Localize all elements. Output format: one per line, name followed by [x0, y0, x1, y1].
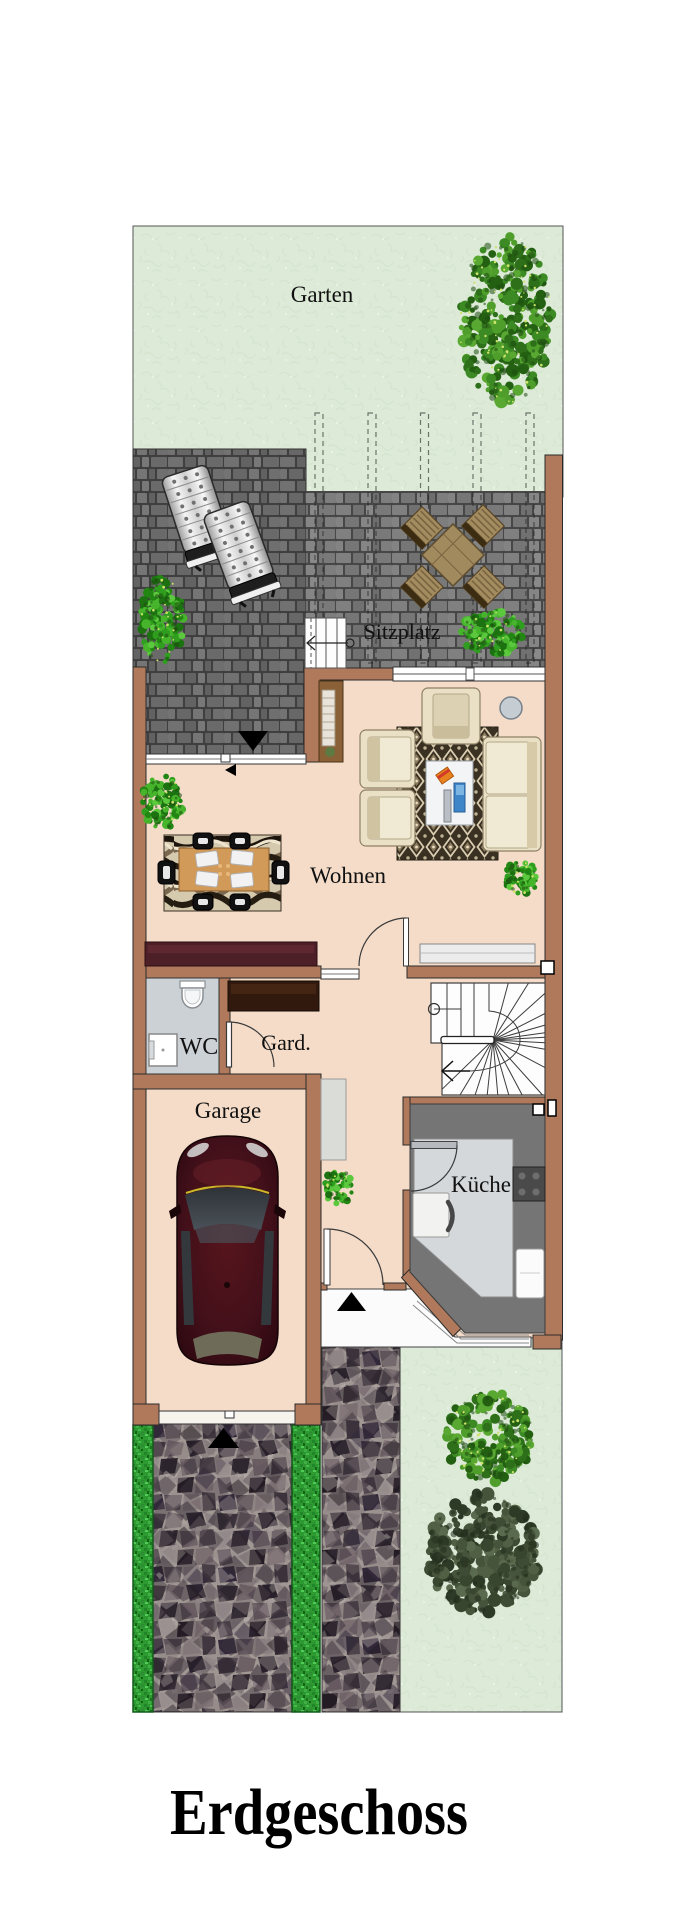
svg-text:WC: WC: [180, 1034, 219, 1060]
svg-text:Gard.: Gard.: [261, 1030, 310, 1055]
svg-text:Erdgeschoss: Erdgeschoss: [170, 1776, 468, 1849]
svg-text:Küche: Küche: [451, 1172, 511, 1197]
svg-text:Sitzplatz: Sitzplatz: [364, 619, 441, 644]
svg-text:Wohnen: Wohnen: [310, 863, 387, 888]
svg-text:Garage: Garage: [195, 1098, 261, 1123]
svg-text:Garten: Garten: [291, 282, 354, 307]
